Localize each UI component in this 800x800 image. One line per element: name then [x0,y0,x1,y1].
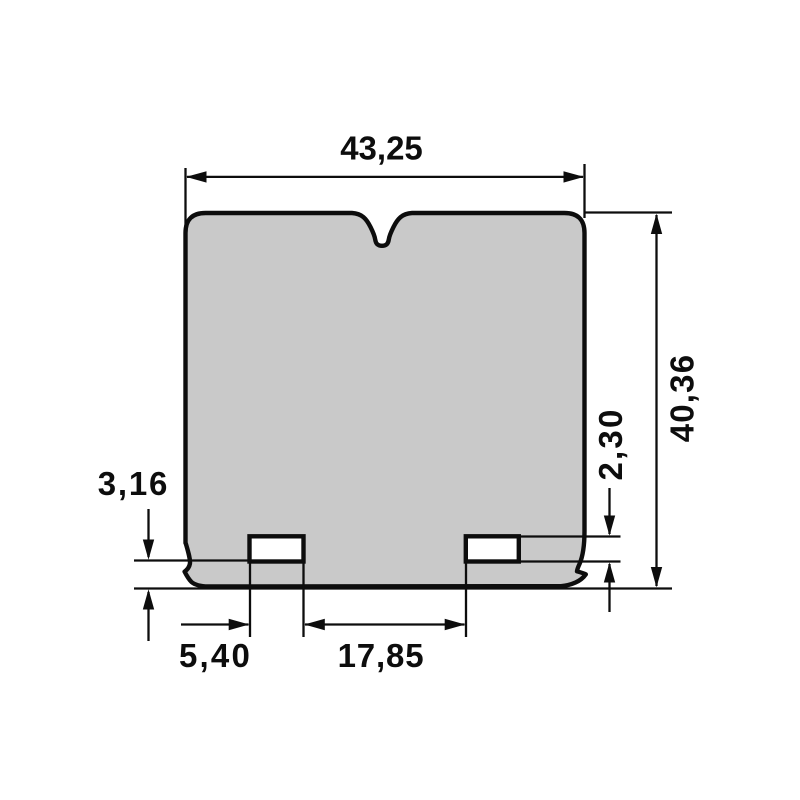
svg-text:43,25: 43,25 [340,130,423,167]
svg-text:3,16: 3,16 [98,465,169,502]
svg-text:40,36: 40,36 [664,354,701,443]
svg-text:5,40: 5,40 [179,637,252,674]
svg-text:17,85: 17,85 [338,637,425,674]
svg-text:2,30: 2,30 [592,407,629,480]
